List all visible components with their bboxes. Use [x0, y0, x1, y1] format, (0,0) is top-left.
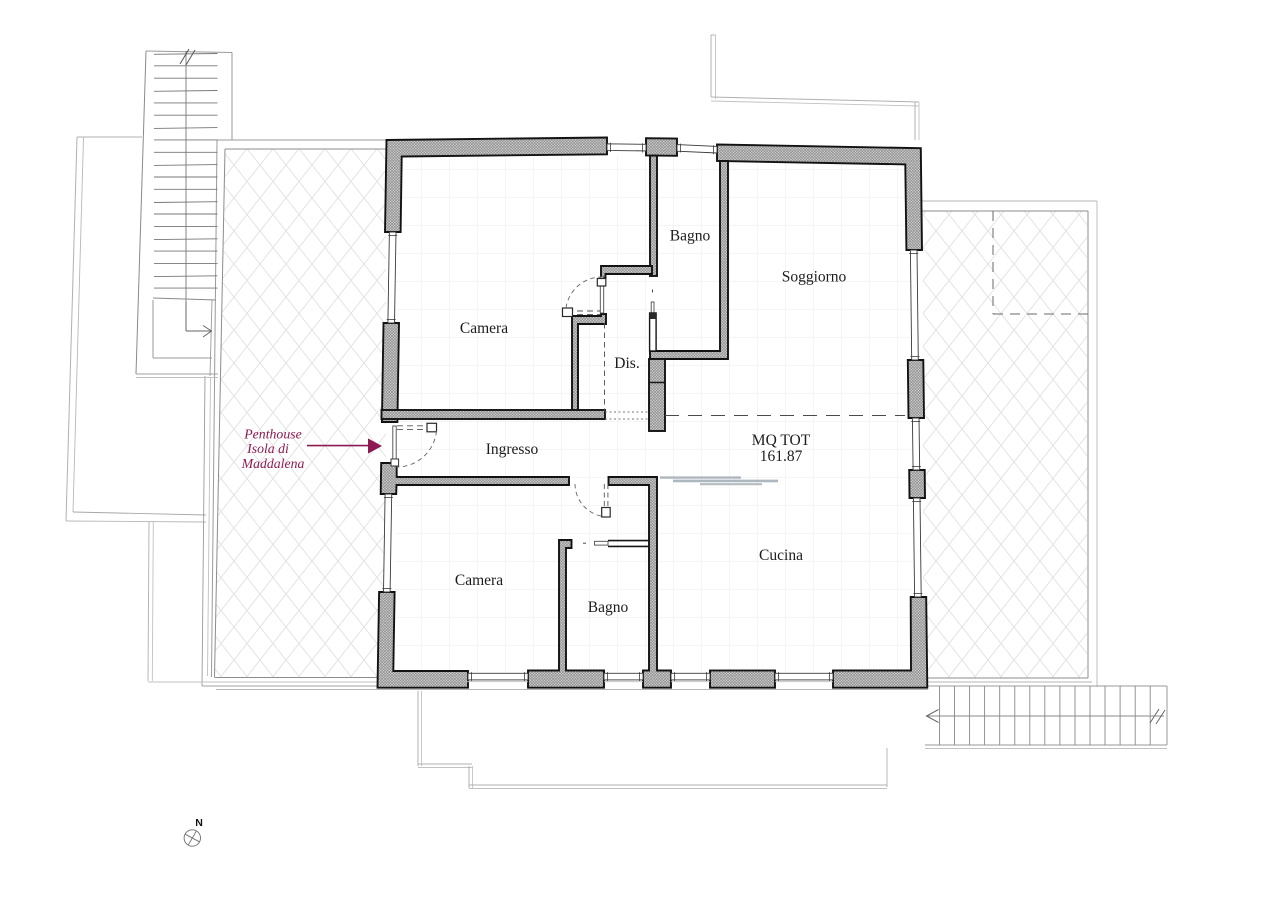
svg-text:Camera: Camera: [460, 320, 508, 337]
svg-text:Isola di: Isola di: [246, 441, 289, 456]
svg-text:Bagno: Bagno: [588, 599, 629, 616]
svg-text:Penthouse: Penthouse: [243, 427, 301, 442]
svg-text:Ingresso: Ingresso: [486, 441, 539, 458]
svg-text:MQ TOT: MQ TOT: [752, 432, 811, 449]
svg-text:161.87: 161.87: [760, 448, 803, 465]
svg-text:Bagno: Bagno: [670, 228, 711, 245]
svg-text:Maddalena: Maddalena: [241, 456, 305, 471]
svg-text:N: N: [195, 817, 203, 829]
svg-text:Soggiorno: Soggiorno: [782, 269, 847, 286]
svg-text:Dis.: Dis.: [614, 355, 639, 372]
svg-text:Camera: Camera: [455, 572, 503, 589]
svg-text:Cucina: Cucina: [759, 547, 803, 564]
